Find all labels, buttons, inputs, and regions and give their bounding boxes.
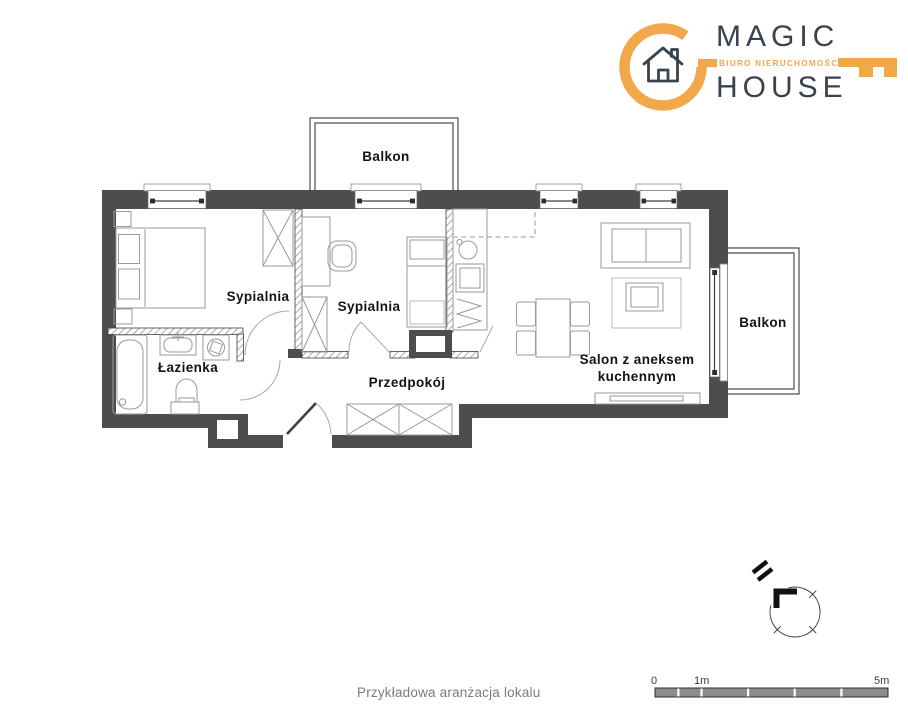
plan-caption: Przykładowa aranżacja lokalu <box>357 685 540 700</box>
bedroom1-door-arc <box>245 311 289 355</box>
shaft <box>409 330 452 358</box>
window-balcony-door-right <box>710 264 728 381</box>
scale-one-meter-label: 1m <box>694 675 709 687</box>
entry-niche <box>217 420 238 439</box>
company-logo: MAGIC BIURO NIERUCHOMOŚCI HOUSE <box>625 20 898 106</box>
house-icon <box>644 48 682 81</box>
balcony-top: Balkon <box>310 118 458 190</box>
balcony-top-label: Balkon <box>362 149 409 164</box>
hall-wardrobe <box>347 404 452 435</box>
window-bedroom1 <box>144 184 210 209</box>
scale-bar: 0 1m 5m <box>651 675 889 697</box>
tv-cabinet <box>595 393 700 404</box>
logo-key-ring-icon <box>625 29 702 106</box>
bathroom-label: Łazienka <box>158 360 218 375</box>
bathroom-door-arc <box>240 360 280 400</box>
bedroom2-door-leaf <box>361 322 390 353</box>
rug <box>612 278 681 328</box>
wardrobe-bedroom2 <box>302 297 327 352</box>
scale-zero-label: 0 <box>651 675 657 687</box>
dining-set <box>517 299 590 357</box>
logo-name-bottom: HOUSE <box>716 71 848 104</box>
living-label-line2: kuchennym <box>598 369 677 384</box>
bed-bedroom2 <box>407 237 447 327</box>
window-living <box>636 184 681 209</box>
toilet <box>171 379 199 414</box>
bedroom2-label: Sypialnia <box>338 299 401 314</box>
sink <box>160 333 196 356</box>
logo-key-shaft <box>698 59 717 67</box>
kitchen-fixtures <box>453 209 535 330</box>
floorplan-canvas: MAGIC BIURO NIERUCHOMOŚCI HOUSE Balkon B… <box>0 0 908 708</box>
hall-label: Przedpokój <box>369 375 446 390</box>
upper-cabinets-dashed <box>453 210 535 237</box>
washing-machine <box>203 335 229 360</box>
wardrobe-bedroom1 <box>263 210 293 266</box>
sofa <box>601 223 690 268</box>
entrance-door-leaf <box>287 403 316 434</box>
bedroom1-furniture <box>114 210 293 324</box>
north-arrow-icon <box>777 592 798 609</box>
balcony-right: Balkon <box>728 248 799 394</box>
bedroom2-door-arc <box>349 322 361 352</box>
logo-tagline: BIURO NIERUCHOMOŚCI <box>719 57 842 68</box>
floorplan-page: MAGIC BIURO NIERUCHOMOŚCI HOUSE Balkon B… <box>0 0 908 708</box>
north-compass <box>753 562 820 638</box>
bedroom1-label: Sypialnia <box>227 289 290 304</box>
scale-five-meter-label: 5m <box>874 675 889 687</box>
window-kitchen <box>536 184 582 209</box>
entrance-door-arc <box>316 403 331 434</box>
balcony-right-label: Balkon <box>739 315 786 330</box>
coffee-table <box>626 283 663 311</box>
logo-name-top: MAGIC <box>716 20 839 53</box>
window-balcony-door-top <box>351 184 421 209</box>
living-label-line1: Salon z aneksem <box>580 352 695 367</box>
